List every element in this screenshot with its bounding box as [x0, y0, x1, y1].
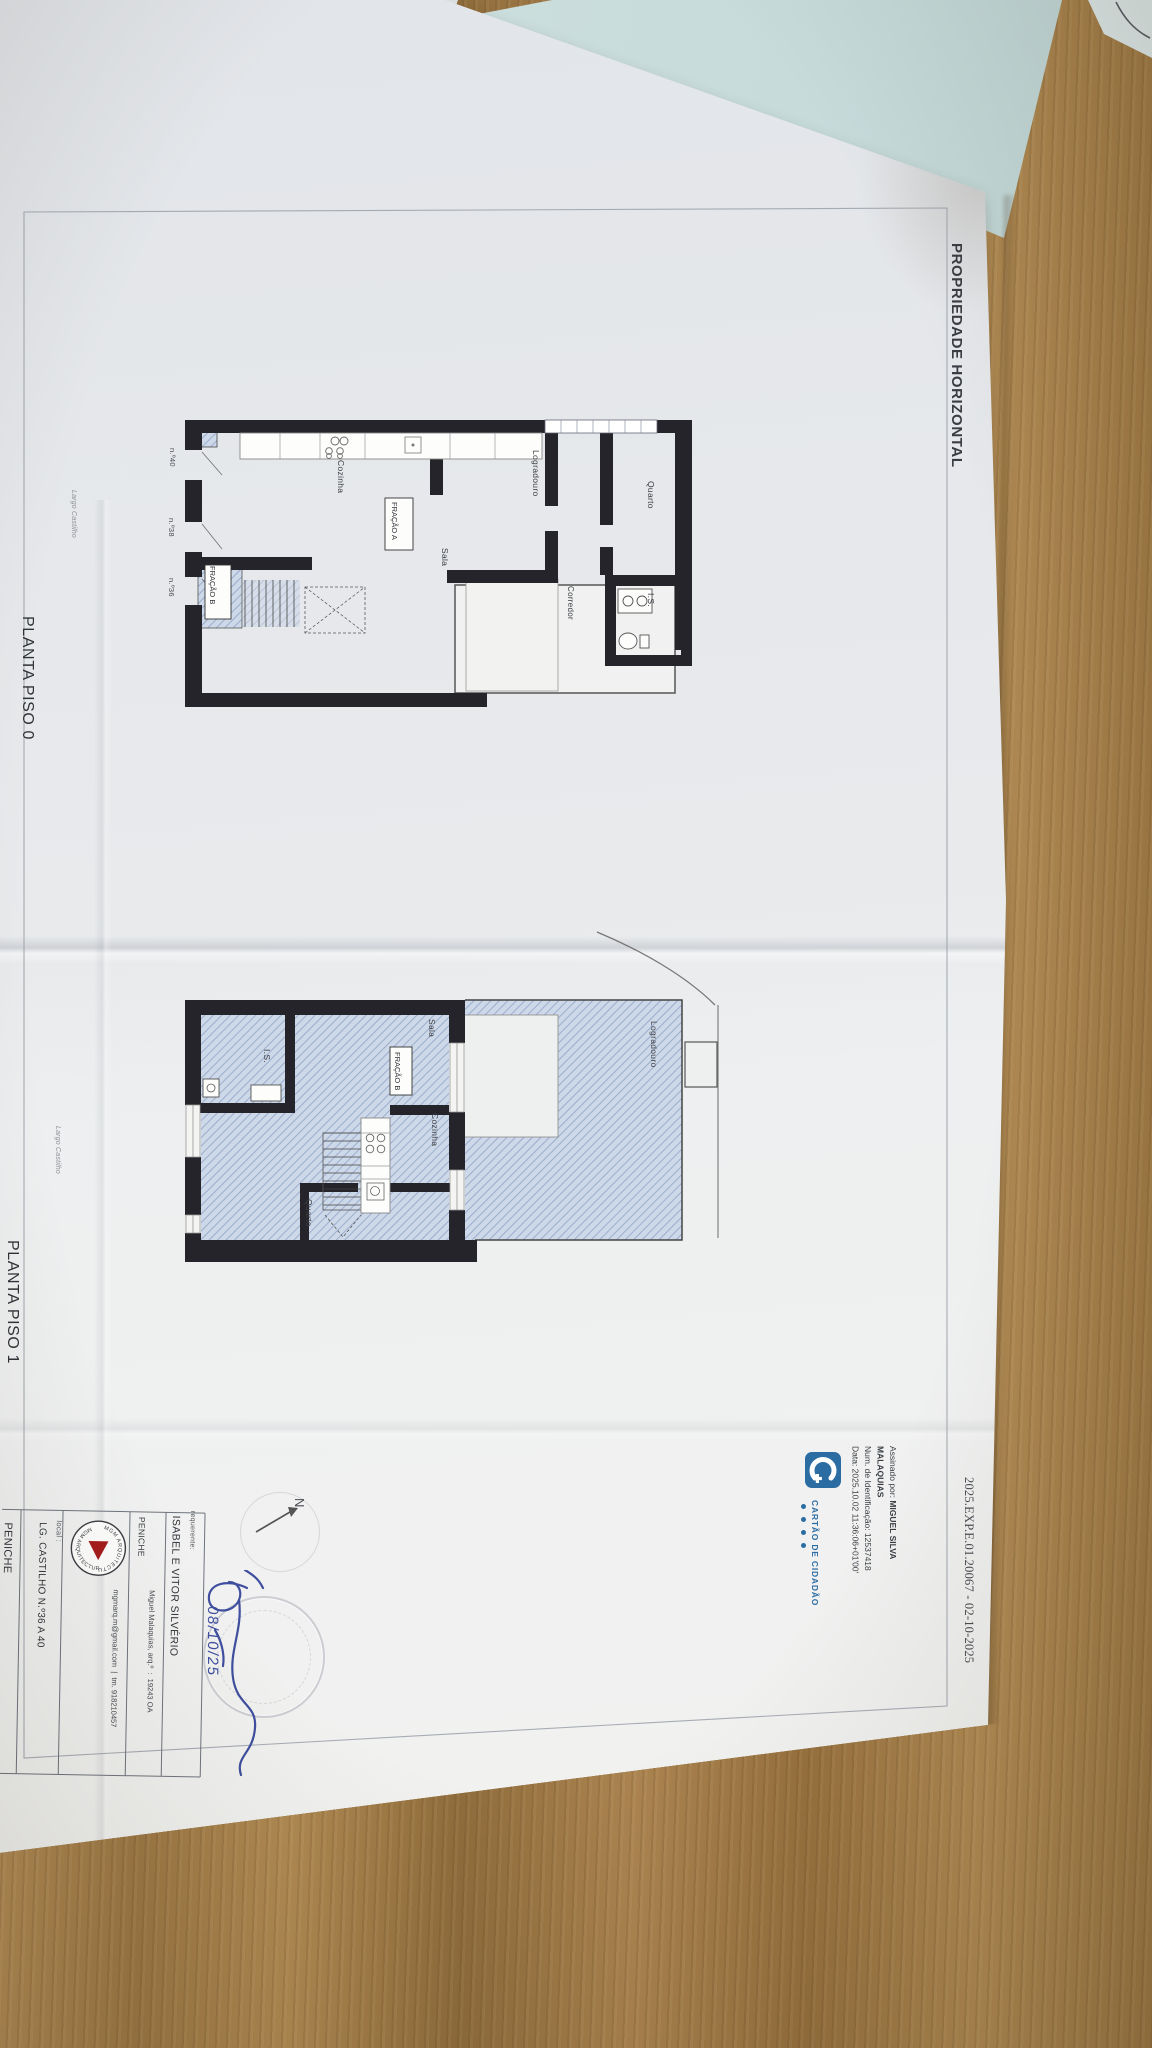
municipality-footer: PENICHE — [1, 1522, 14, 1573]
title-block: requerente: ISABEL E VITOR SILVÉRIO PENI… — [0, 1501, 214, 1789]
requerente-label: requerente: — [188, 1511, 196, 1550]
handwritten-date: 08/10/25 — [204, 1605, 221, 1677]
north-label: N — [292, 1498, 307, 1508]
room-label-quarto-p1: Quarto — [304, 1199, 314, 1227]
door-number-40: n.º40 — [168, 448, 177, 467]
room-label-cozinha-p1: Cozinha — [430, 1113, 440, 1146]
plot-boundary-line — [585, 920, 750, 1255]
street-label-p1: Largo Castilho — [54, 1126, 61, 1174]
room-label-cozinha-p0: Cozinha — [336, 460, 346, 493]
room-label-is-p1: I.S. — [262, 1049, 272, 1063]
municipality-label: PENICHE — [136, 1517, 147, 1557]
contact-line: mgmarq.m@gmail.com | tm. 918210457 — [107, 1589, 122, 1727]
cartao-cidadao-logo-icon — [803, 1450, 843, 1490]
architect-contact: Miguel Malaquias, arq.º : 19243 OA mgmar… — [83, 1589, 182, 1729]
architect-line: Miguel Malaquias, arq.º : 19243 OA — [143, 1590, 158, 1728]
room-label-sala-p0: Sala — [440, 548, 450, 566]
cc-dot — [801, 1504, 806, 1509]
local-label: local : — [54, 1520, 63, 1542]
room-label-quarto-p0: Quarto — [646, 481, 656, 509]
street-label-p0: Largo Castilho — [70, 490, 77, 538]
cc-brand-text: CARTÃO DE CIDADÃO — [810, 1500, 820, 1606]
document-reference: 2025.EXP.E.01.20067 - 02-10-2025 — [961, 1477, 976, 1663]
cc-dot — [801, 1530, 806, 1535]
room-label-logradouro-p1: Logradouro — [649, 1021, 659, 1067]
cc-dot — [801, 1517, 806, 1522]
signature-line-2: MALAQUIAS — [874, 1446, 887, 1666]
signature-line-4: Data: 2025.10.02 11:36:06+01'00' — [849, 1446, 862, 1666]
fraction-label-a: FRAÇÃO A — [390, 502, 399, 540]
fraction-label-b-p1: FRAÇÃO B — [393, 1052, 402, 1090]
fraction-label-b-p0: FRAÇÃO B — [208, 566, 217, 604]
door-number-38: n.º38 — [167, 518, 176, 537]
room-label-sala-p1: Sala — [427, 1019, 437, 1037]
room-label-logradouro-p0: Logradouro — [531, 450, 541, 496]
document-title: PROPRIEDADE HORIZONTAL — [948, 243, 965, 468]
photo-of-floorplan-document: { "document": { "header_title": "PROPRIE… — [0, 0, 1152, 2048]
handwritten-signature — [185, 1570, 295, 1780]
floor-plan-piso0 — [150, 405, 700, 725]
room-label-corredor-p0: Corredor — [566, 586, 575, 620]
plan-title-piso0: PLANTA PISO 0 — [18, 616, 36, 740]
local-value: LG. CASTILHO N.º36 A 40 — [35, 1522, 48, 1648]
cc-dot — [801, 1543, 806, 1548]
signature-line-3: Num. de Identificação: 12537418 — [862, 1446, 875, 1666]
room-label-is-p0: I.S. — [646, 593, 656, 607]
digital-signature-block: Assinado por: MIGUEL SILVA MALAQUIAS Num… — [845, 1446, 899, 1666]
door-number-36: n.º36 — [167, 578, 176, 597]
mgm-arquitectura-logo-icon: MGM ARQUITECTURA MGM ARQUITECTURA — [67, 1517, 130, 1580]
signature-line-1: Assinado por: MIGUEL SILVA — [887, 1446, 900, 1666]
plan-title-piso1: PLANTA PISO 1 — [3, 1240, 21, 1364]
